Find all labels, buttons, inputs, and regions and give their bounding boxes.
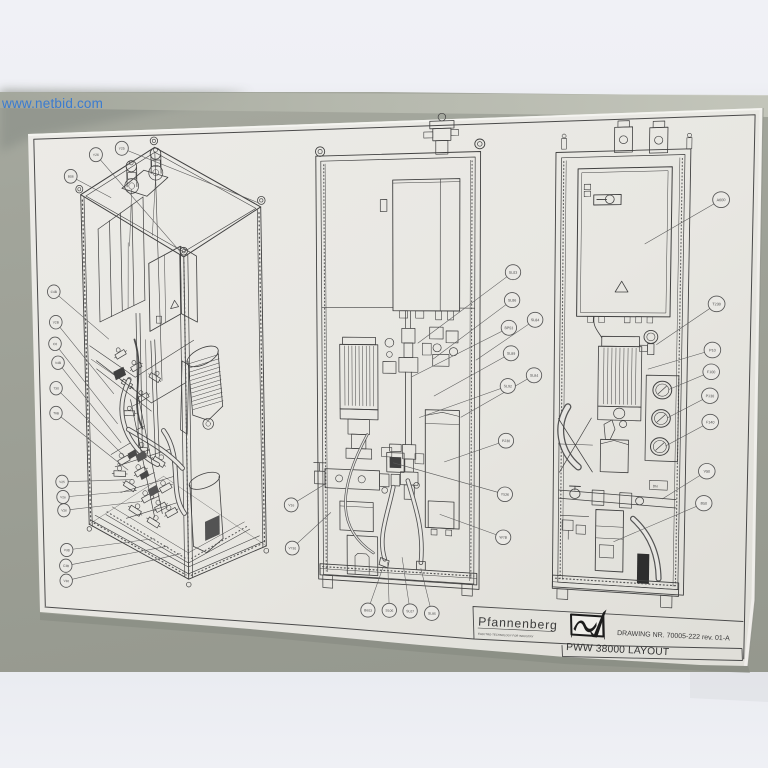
svg-text:SL06: SL06 [385,608,393,613]
svg-text:V730: V730 [288,546,296,550]
svg-text:SL89: SL89 [507,352,515,356]
svg-text:B06: B06 [68,175,74,179]
svg-text:F140: F140 [706,420,715,424]
svg-text:BP53: BP53 [505,326,514,330]
svg-text:B50: B50 [701,501,708,505]
svg-text:T30: T30 [53,386,59,390]
svg-text:SL07: SL07 [406,609,414,614]
svg-text:V2B: V2B [53,320,59,324]
svg-text:W7B: W7B [499,535,507,539]
svg-text:Y25: Y25 [119,147,125,151]
svg-text:P130: P130 [706,394,715,398]
svg-text:F100: F100 [707,370,716,374]
svg-text:SL84: SL84 [531,318,539,322]
svg-text:Y26: Y26 [93,153,99,157]
svg-text:V36: V36 [61,508,67,512]
svg-text:SL83: SL83 [509,271,517,275]
svg-text:C4B: C4B [51,290,57,294]
svg-text:www.netbid.com: www.netbid.com [1,96,103,111]
svg-text:V50: V50 [703,469,710,473]
svg-text:SL86: SL86 [508,298,516,302]
svg-text:SL92: SL92 [504,384,512,388]
svg-text:B603: B603 [364,608,372,613]
svg-text:DN: DN [653,484,659,488]
svg-text:V16: V16 [288,503,294,507]
svg-text:SL84: SL84 [530,374,538,378]
svg-text:SL85: SL85 [428,611,436,616]
svg-text:C6: C6 [53,342,57,346]
svg-text:V30: V30 [63,579,69,583]
svg-text:T230: T230 [712,302,721,306]
svg-text:Y526: Y526 [501,493,509,497]
svg-text:V26: V26 [60,495,66,499]
svg-text:V3B: V3B [64,548,70,552]
svg-text:P230: P230 [502,439,510,443]
svg-text:C3B: C3B [63,564,69,568]
svg-text:P10: P10 [709,348,716,352]
svg-text:A600: A600 [717,198,726,202]
svg-text:T6B: T6B [53,411,59,415]
svg-text:V4B: V4B [55,361,61,365]
svg-text:V25: V25 [59,480,65,484]
